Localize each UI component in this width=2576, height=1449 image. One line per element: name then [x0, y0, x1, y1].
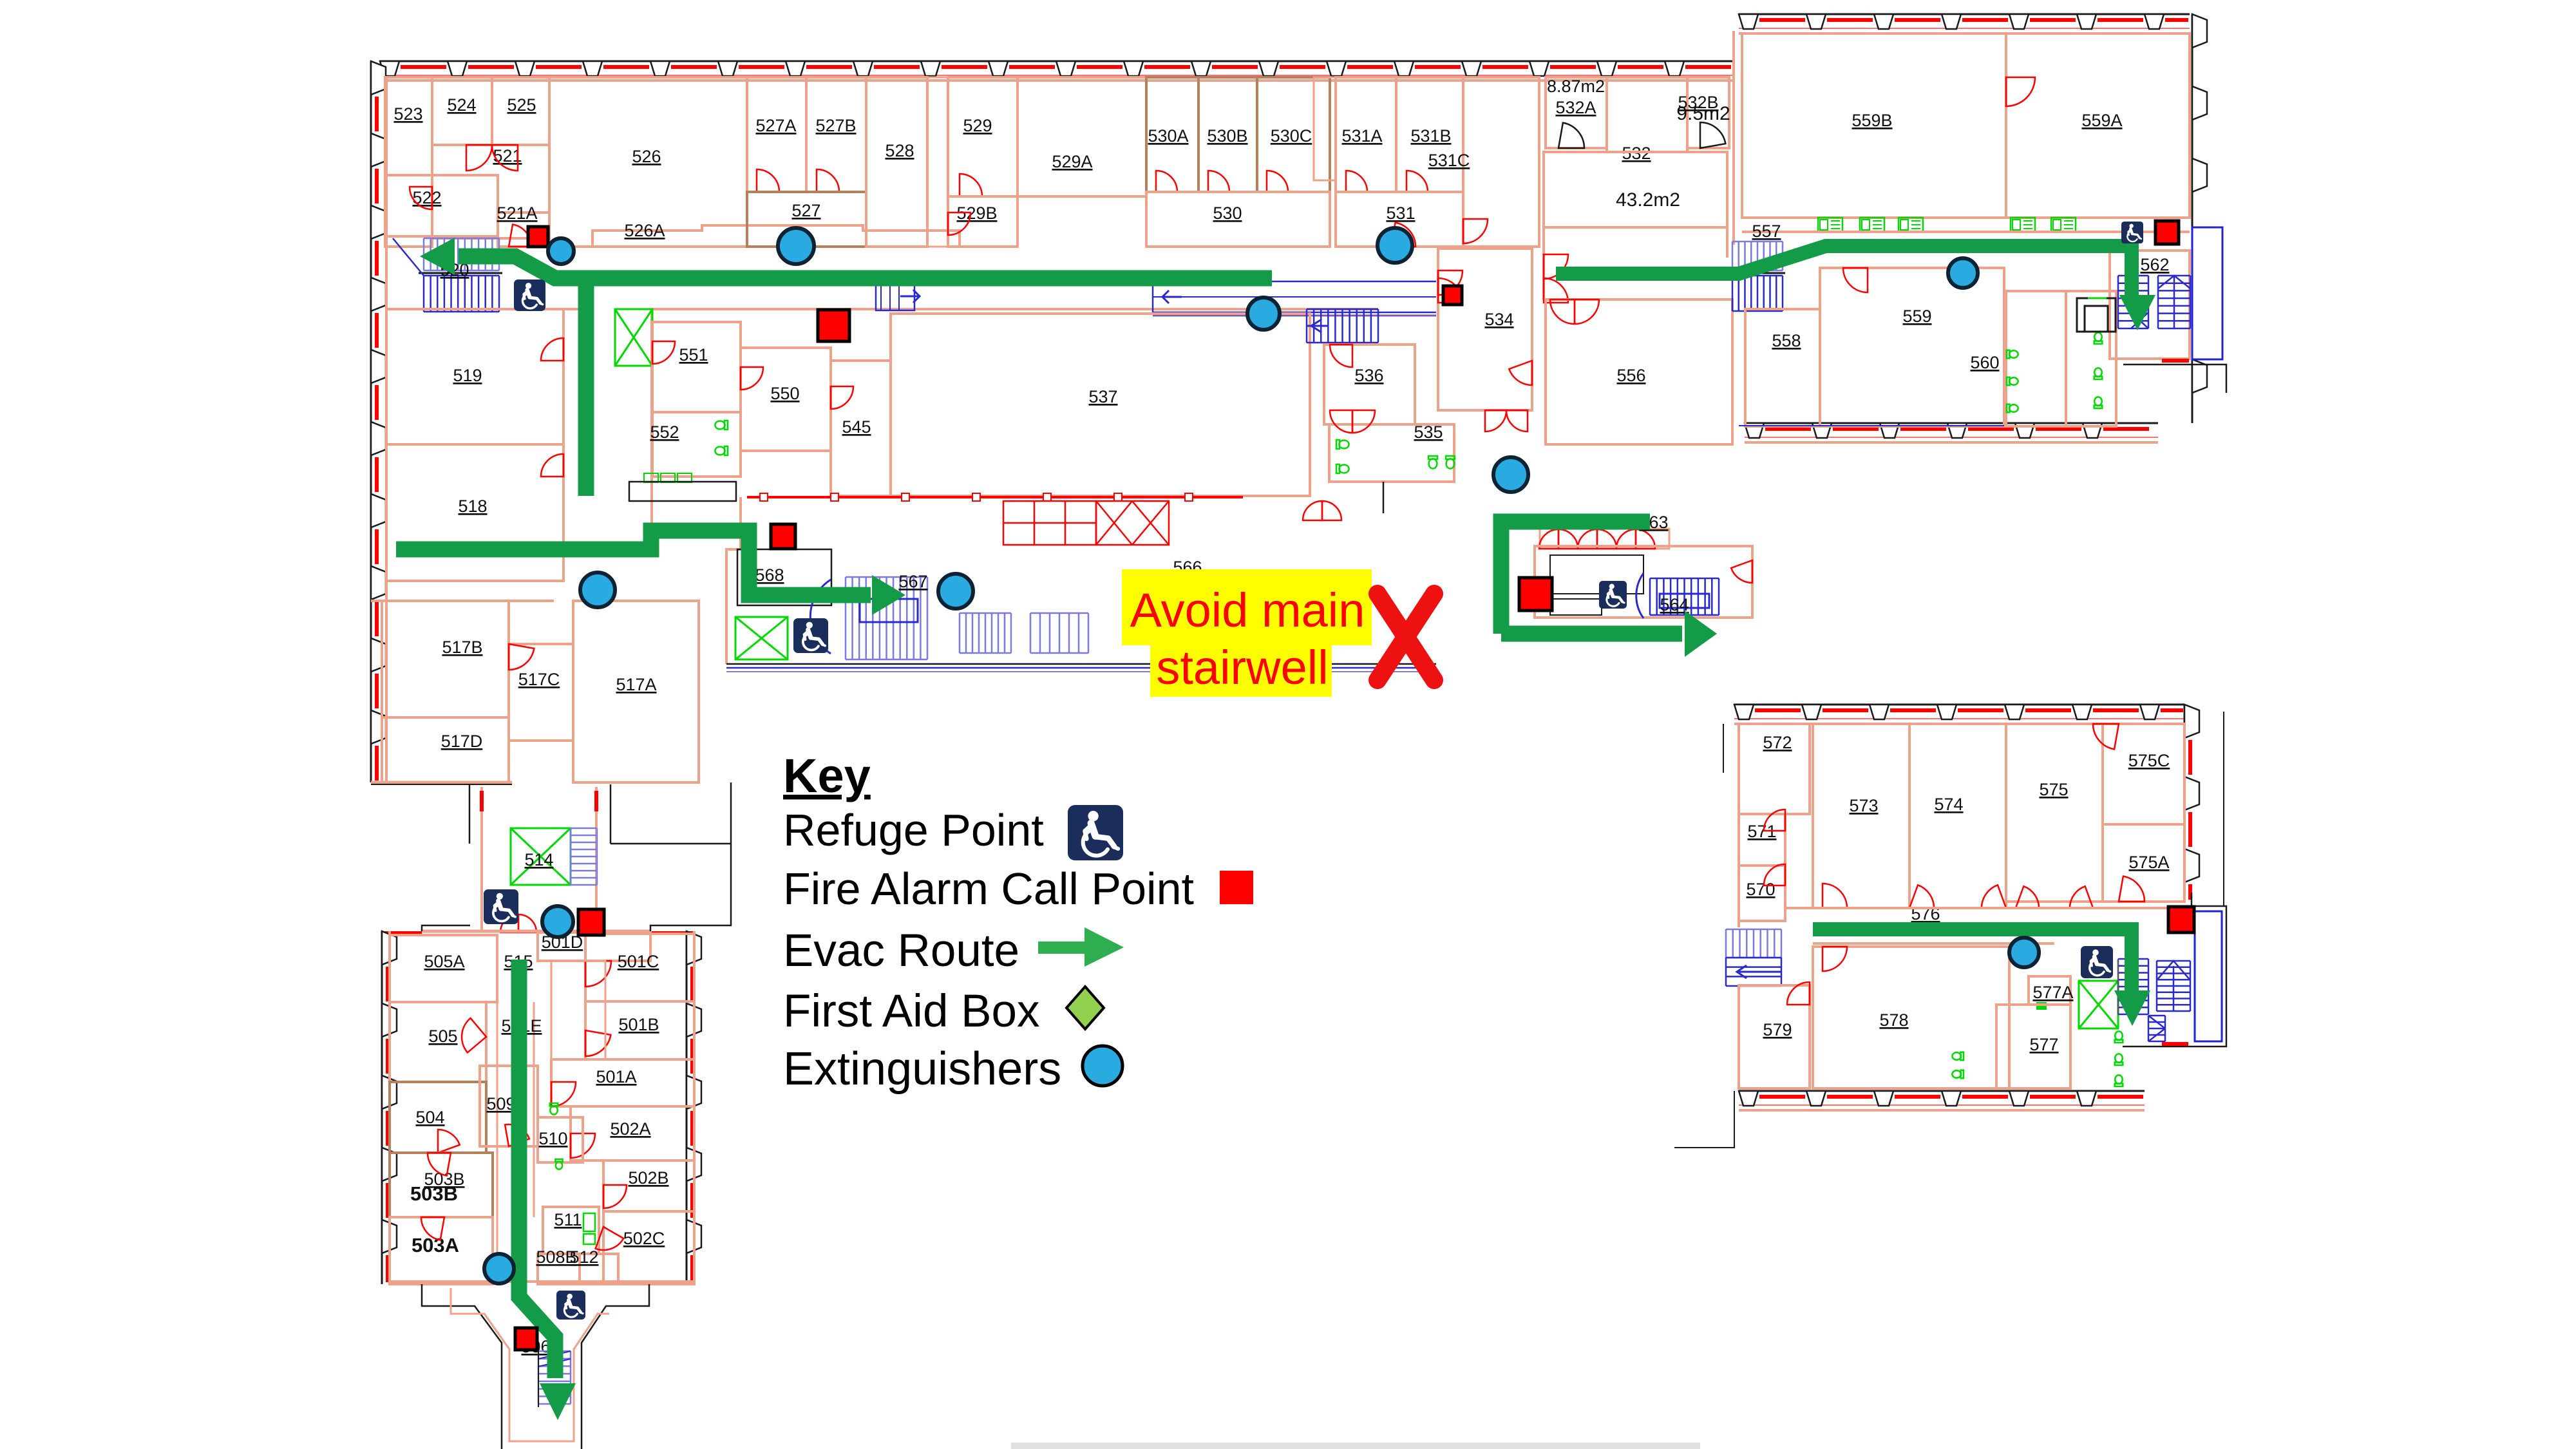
svg-text:501B: 501B — [618, 1015, 659, 1034]
svg-text:505: 505 — [428, 1027, 457, 1046]
svg-text:505A: 505A — [424, 952, 464, 971]
svg-text:Refuge Point: Refuge Point — [783, 805, 1044, 855]
svg-text:578: 578 — [1879, 1010, 1908, 1030]
svg-text:559B: 559B — [1851, 111, 1892, 130]
svg-text:536: 536 — [1354, 366, 1383, 385]
svg-text:567: 567 — [898, 572, 927, 591]
svg-text:517C: 517C — [518, 670, 560, 689]
svg-text:558: 558 — [1772, 331, 1801, 350]
svg-text:510: 510 — [538, 1129, 567, 1148]
svg-text:9.5m2: 9.5m2 — [1676, 103, 1730, 124]
svg-text:522: 522 — [412, 188, 441, 207]
svg-text:503B: 503B — [410, 1182, 458, 1205]
svg-text:551: 551 — [679, 345, 708, 365]
svg-text:535: 535 — [1414, 422, 1443, 442]
svg-text:577: 577 — [2029, 1035, 2058, 1054]
svg-text:577A: 577A — [2032, 983, 2073, 1002]
svg-text:531A: 531A — [1341, 126, 1382, 146]
svg-text:575C: 575C — [2128, 751, 2170, 770]
svg-text:534: 534 — [1484, 310, 1513, 329]
svg-text:501A: 501A — [596, 1067, 636, 1086]
svg-text:525: 525 — [507, 95, 536, 115]
svg-text:502C: 502C — [623, 1229, 665, 1248]
svg-text:529A: 529A — [1052, 152, 1092, 171]
svg-text:570: 570 — [1746, 880, 1775, 899]
svg-text:545: 545 — [842, 417, 871, 437]
svg-text:564: 564 — [1660, 595, 1689, 614]
svg-text:575: 575 — [2039, 780, 2068, 799]
svg-text:521A: 521A — [497, 204, 537, 223]
svg-text:557: 557 — [1752, 222, 1781, 241]
svg-text:8.87m2: 8.87m2 — [1547, 77, 1605, 96]
svg-text:First Aid Box: First Aid Box — [783, 986, 1040, 1037]
svg-text:526A: 526A — [624, 221, 665, 240]
svg-text:559: 559 — [1902, 307, 1931, 326]
svg-text:527B: 527B — [815, 116, 856, 135]
svg-text:556: 556 — [1616, 366, 1645, 385]
svg-text:511: 511 — [554, 1210, 582, 1229]
svg-text:519: 519 — [453, 366, 482, 385]
svg-text:526: 526 — [632, 147, 661, 166]
svg-text:517D: 517D — [441, 732, 483, 751]
svg-text:523: 523 — [393, 104, 422, 124]
svg-text:550: 550 — [770, 384, 799, 403]
svg-text:552: 552 — [650, 422, 679, 442]
svg-text:529: 529 — [963, 116, 992, 135]
svg-text:530C: 530C — [1271, 126, 1312, 146]
svg-text:518: 518 — [458, 497, 487, 516]
svg-text:Key: Key — [783, 749, 871, 802]
svg-text:572: 572 — [1763, 733, 1792, 752]
svg-text:562: 562 — [2140, 255, 2169, 274]
svg-text:stairwell: stairwell — [1156, 641, 1328, 694]
svg-text:559A: 559A — [2081, 111, 2122, 130]
svg-text:517B: 517B — [442, 638, 482, 657]
svg-text:530A: 530A — [1148, 126, 1188, 146]
svg-text:530B: 530B — [1207, 126, 1247, 146]
svg-text:530: 530 — [1213, 204, 1242, 223]
svg-text:514: 514 — [524, 850, 553, 869]
svg-text:527A: 527A — [755, 116, 796, 135]
svg-text:504: 504 — [415, 1108, 444, 1127]
svg-text:579: 579 — [1763, 1020, 1792, 1039]
svg-text:524: 524 — [447, 95, 476, 115]
svg-text:512: 512 — [569, 1247, 598, 1267]
svg-text:527: 527 — [791, 201, 820, 220]
svg-text:43.2m2: 43.2m2 — [1616, 189, 1680, 211]
svg-text:532A: 532A — [1555, 98, 1596, 117]
svg-text:528: 528 — [885, 141, 914, 160]
svg-text:Extinguishers: Extinguishers — [783, 1043, 1061, 1095]
svg-text:503A: 503A — [412, 1234, 459, 1256]
svg-text:531: 531 — [1386, 204, 1415, 223]
svg-text:502A: 502A — [610, 1119, 650, 1139]
svg-text:560: 560 — [1970, 353, 1999, 372]
svg-text:575A: 575A — [2128, 853, 2169, 872]
svg-text:517A: 517A — [616, 675, 656, 694]
svg-text:502B: 502B — [628, 1168, 668, 1188]
svg-text:531B: 531B — [1410, 126, 1451, 146]
svg-text:Evac Route: Evac Route — [783, 925, 1019, 976]
svg-text:Fire Alarm Call Point: Fire Alarm Call Point — [783, 864, 1194, 914]
svg-text:537: 537 — [1088, 387, 1117, 406]
svg-text:501C: 501C — [618, 952, 659, 971]
svg-text:574: 574 — [1934, 795, 1963, 814]
svg-text:573: 573 — [1849, 796, 1878, 815]
svg-text:568: 568 — [755, 565, 784, 585]
svg-text:Avoid main: Avoid main — [1130, 583, 1365, 637]
svg-text:531C: 531C — [1428, 151, 1470, 170]
